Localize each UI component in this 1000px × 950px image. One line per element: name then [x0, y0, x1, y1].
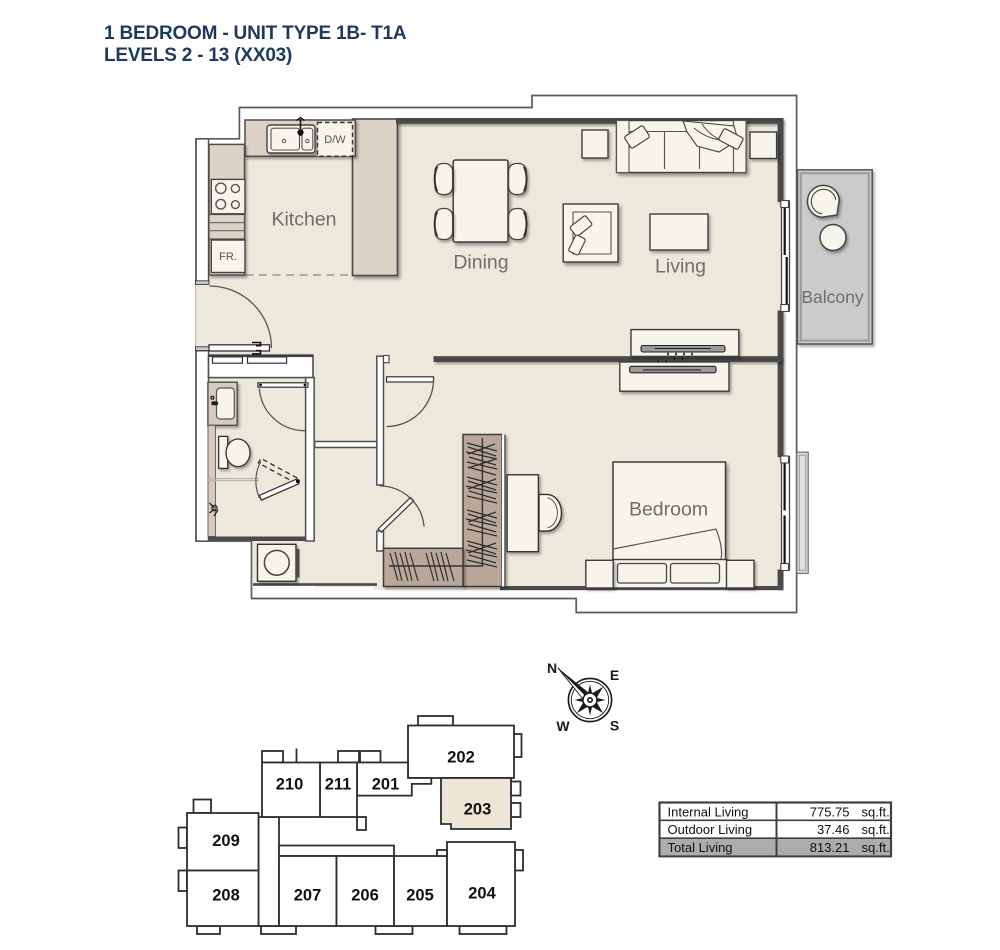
svg-text:211: 211 — [325, 776, 352, 794]
svg-text:Dining: Dining — [453, 252, 508, 274]
svg-text:207: 207 — [294, 887, 322, 905]
svg-text:Living: Living — [655, 256, 706, 278]
svg-text:D/W: D/W — [324, 134, 346, 146]
svg-text:37.46: 37.46 — [817, 822, 850, 837]
svg-text:N: N — [547, 660, 557, 676]
svg-text:Internal Living: Internal Living — [668, 804, 749, 819]
svg-text:FR.: FR. — [219, 251, 237, 263]
svg-text:209: 209 — [212, 832, 240, 850]
svg-text:1 BEDROOM - UNIT TYPE 1B- T1A: 1 BEDROOM - UNIT TYPE 1B- T1A — [104, 23, 407, 44]
svg-text:Total Living: Total Living — [668, 840, 733, 855]
svg-text:205: 205 — [406, 887, 434, 905]
svg-text:sq.ft.: sq.ft. — [862, 840, 890, 855]
svg-text:206: 206 — [351, 887, 379, 905]
svg-text:Kitchen: Kitchen — [271, 209, 336, 231]
svg-text:sq.ft.: sq.ft. — [862, 822, 890, 837]
svg-text:813.21: 813.21 — [810, 840, 850, 855]
svg-text:775.75: 775.75 — [810, 804, 850, 819]
svg-text:LEVELS 2 - 13 (XX03): LEVELS 2 - 13 (XX03) — [104, 45, 292, 66]
svg-text:W: W — [556, 718, 570, 734]
svg-text:Balcony: Balcony — [801, 287, 864, 307]
svg-text:210: 210 — [276, 776, 304, 794]
svg-text:201: 201 — [372, 776, 400, 794]
svg-text:Outdoor Living: Outdoor Living — [668, 822, 753, 837]
svg-text:202: 202 — [447, 749, 475, 767]
svg-text:204: 204 — [468, 885, 496, 903]
svg-text:E: E — [610, 667, 619, 683]
svg-text:208: 208 — [212, 887, 240, 905]
svg-text:Bedroom: Bedroom — [629, 499, 708, 521]
svg-text:203: 203 — [464, 801, 492, 819]
svg-text:S: S — [610, 718, 619, 734]
svg-text:sq.ft.: sq.ft. — [862, 804, 890, 819]
